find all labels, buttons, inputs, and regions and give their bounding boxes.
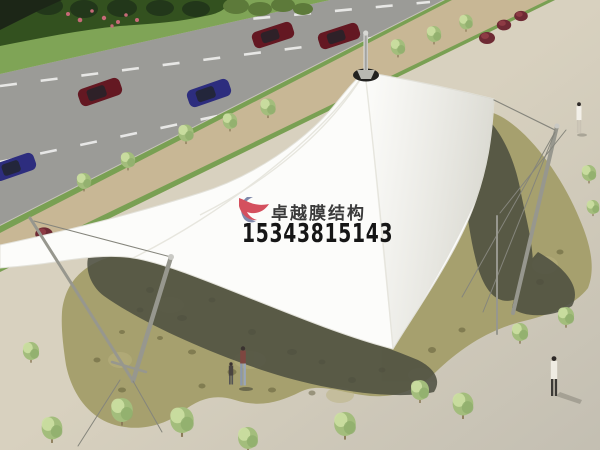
mast-cap	[555, 124, 560, 129]
scene-illustration	[0, 0, 600, 450]
membrane-corner-fitting	[168, 254, 174, 260]
rendering-canvas: 卓越膜结构 15343815143	[0, 0, 600, 450]
